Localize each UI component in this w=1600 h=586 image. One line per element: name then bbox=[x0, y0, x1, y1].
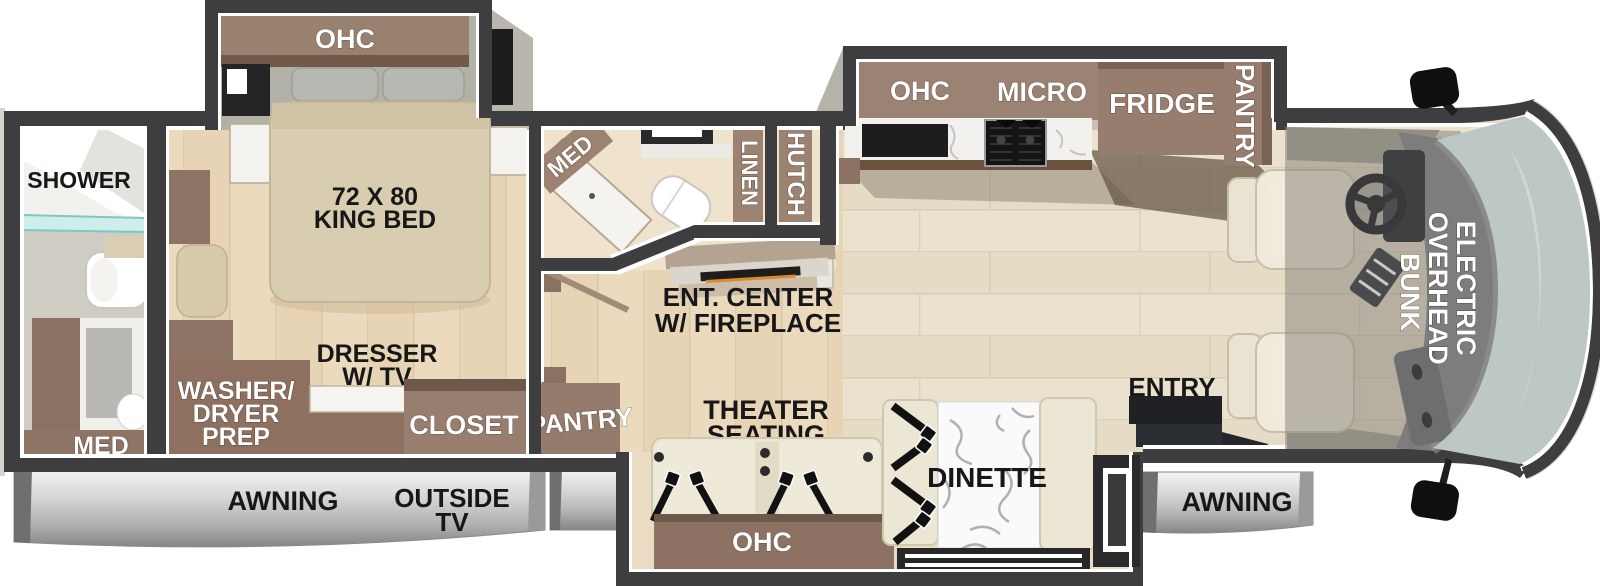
svg-text:MICRO: MICRO bbox=[997, 77, 1087, 107]
svg-text:TV: TV bbox=[435, 507, 469, 537]
svg-text:LINEN: LINEN bbox=[737, 140, 762, 206]
svg-text:W/ FIREPLACE: W/ FIREPLACE bbox=[655, 308, 841, 338]
svg-text:KING BED: KING BED bbox=[314, 206, 436, 234]
svg-text:HUTCH: HUTCH bbox=[782, 132, 809, 216]
svg-text:OHC: OHC bbox=[315, 24, 375, 54]
svg-text:PANTRY: PANTRY bbox=[1230, 64, 1260, 168]
svg-text:W/ TV: W/ TV bbox=[342, 363, 412, 391]
svg-text:AWNING: AWNING bbox=[228, 486, 339, 516]
svg-text:PREP: PREP bbox=[202, 423, 270, 451]
svg-text:FRIDGE: FRIDGE bbox=[1109, 88, 1215, 119]
svg-text:DINETTE: DINETTE bbox=[927, 462, 1047, 493]
svg-text:SHOWER: SHOWER bbox=[27, 167, 131, 193]
svg-text:AWNING: AWNING bbox=[1182, 487, 1293, 517]
svg-text:OHC: OHC bbox=[890, 76, 950, 106]
svg-text:CLOSET: CLOSET bbox=[409, 410, 519, 440]
svg-text:OHC: OHC bbox=[732, 527, 792, 557]
